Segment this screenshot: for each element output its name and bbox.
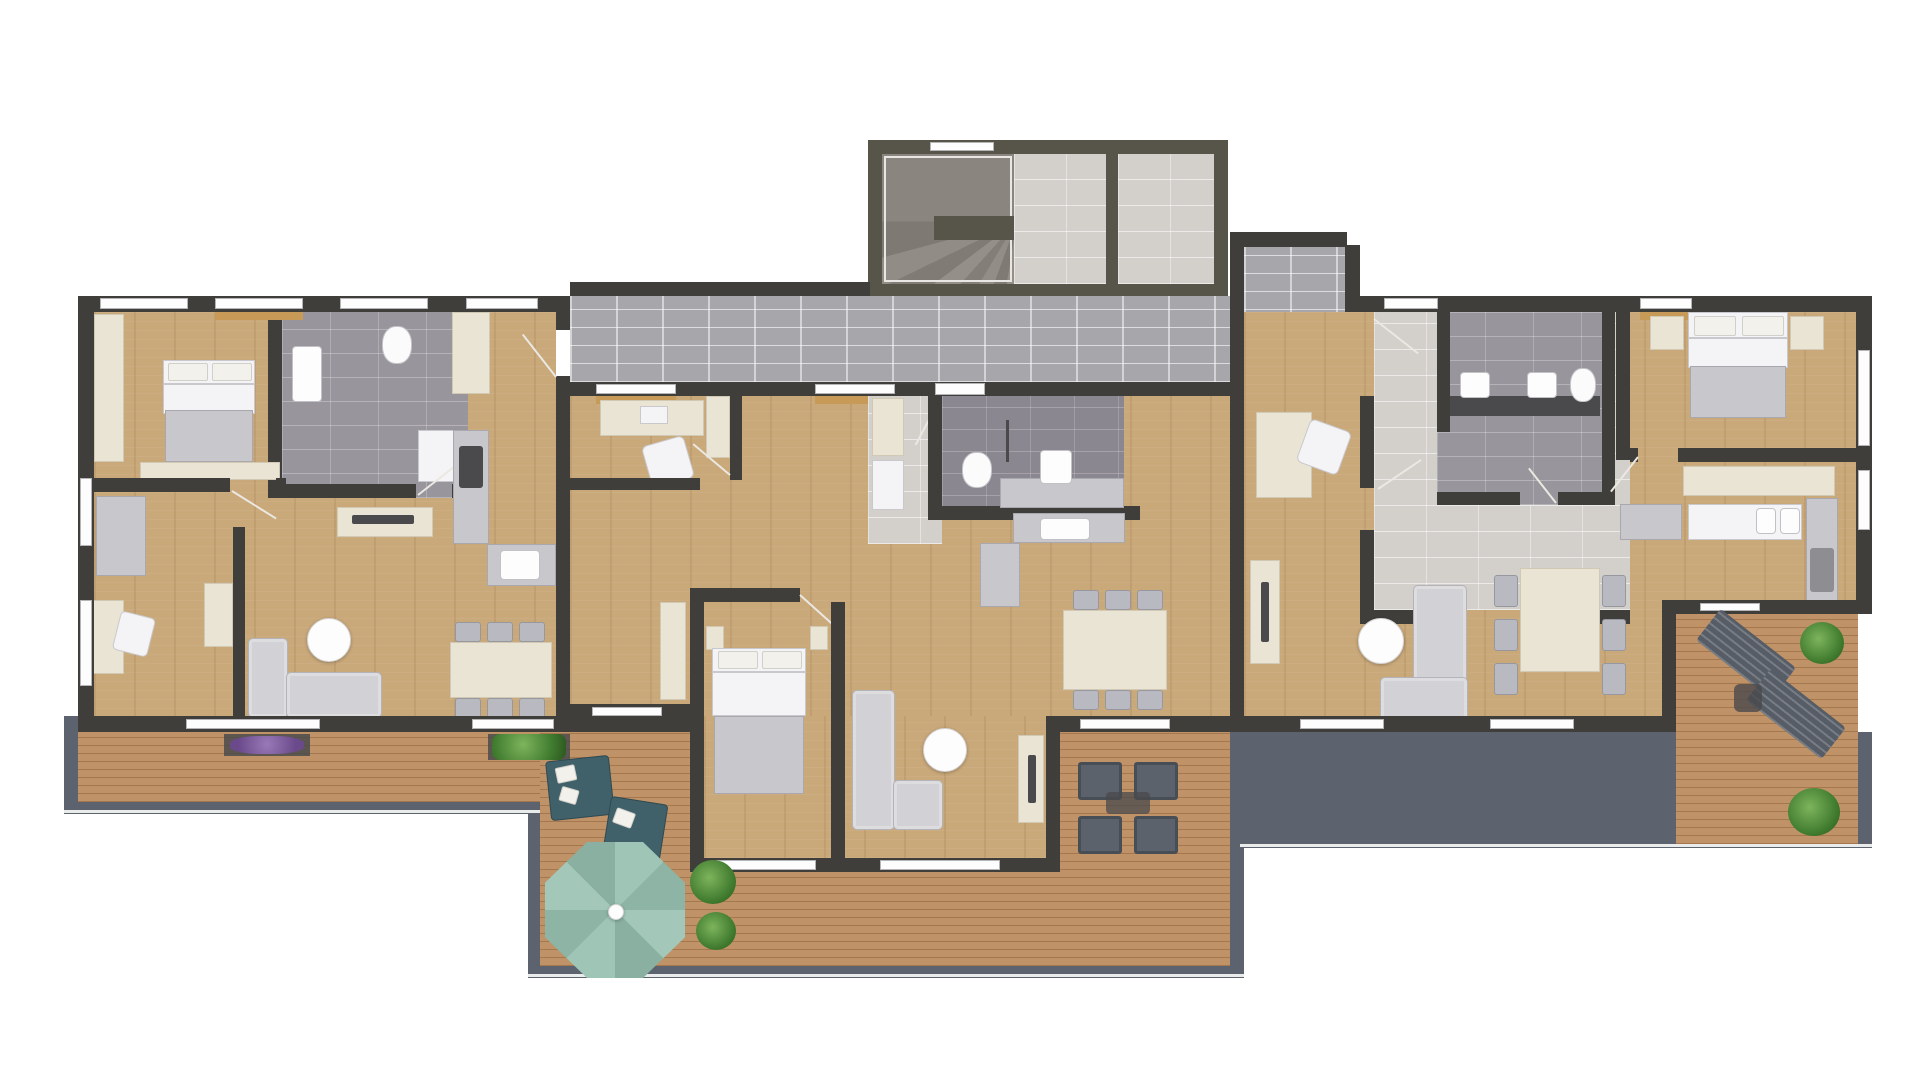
dining-table: [1063, 610, 1167, 690]
hall-cabinet: [872, 460, 904, 510]
window: [1858, 350, 1870, 446]
bed-sheet: [1688, 338, 1788, 368]
round-coffee-table: [923, 728, 967, 772]
round-coffee-table: [307, 618, 351, 662]
floor-plan-canvas: [0, 0, 1920, 1080]
kitchen-counter: [980, 543, 1020, 607]
terrace-door: [592, 707, 662, 716]
apartment-entry-door: [935, 383, 985, 395]
dining-chair: [1137, 690, 1163, 710]
bed-pillow: [762, 651, 802, 669]
parasol-pole: [608, 904, 624, 920]
outdoor-armchair: [1078, 816, 1122, 854]
middle-bathroom-wall: [928, 396, 942, 520]
stairwell-bottom-wall: [1104, 284, 1228, 296]
window: [100, 298, 188, 309]
corner-sofa: [852, 690, 895, 830]
terrace-door: [1300, 719, 1384, 729]
dining-chair: [487, 622, 513, 642]
dining-chair: [1494, 663, 1518, 695]
dining-chair: [519, 622, 545, 642]
dining-table: [450, 642, 552, 698]
stairwell-storage-room: [1118, 154, 1214, 284]
bedroom-west-wall: [1616, 312, 1630, 460]
right-bathroom-wall: [1437, 312, 1450, 432]
stairwell-window: [930, 142, 994, 151]
wardrobe-column: [94, 314, 124, 462]
tv: [1028, 755, 1036, 803]
purple-flower-planter: [230, 736, 304, 754]
round-coffee-table: [1358, 618, 1404, 664]
washbasin: [292, 346, 322, 402]
tv: [352, 515, 414, 524]
dining-chair: [519, 698, 545, 718]
washbasin: [1040, 450, 1072, 484]
dining-chair: [455, 698, 481, 718]
bed-pillow: [718, 651, 758, 669]
party-wall-2: [1230, 245, 1244, 732]
right-east-wall: [1856, 296, 1872, 614]
bed-sheet: [712, 672, 806, 716]
bedroom-east-wall: [831, 602, 845, 858]
bedroom-south-wall: [1678, 448, 1872, 462]
potted-plant: [696, 912, 736, 950]
terrace-door: [186, 719, 320, 729]
dining-chair: [1602, 619, 1626, 651]
terrace-door: [1080, 719, 1170, 729]
left-apartment-south-wall: [78, 716, 692, 732]
right-bathroom-wall: [1602, 312, 1615, 505]
nightstand: [1650, 316, 1684, 350]
window: [1640, 298, 1692, 309]
bed-pillow: [1694, 316, 1736, 336]
dining-chair: [1073, 690, 1099, 710]
green-planter: [492, 734, 566, 760]
stairwell-inner-wall: [1106, 154, 1118, 246]
left-bedroom-wall: [276, 478, 286, 492]
outdoor-armchair: [1134, 816, 1178, 854]
bathroom-lamp: [1006, 420, 1009, 462]
dining-chair: [1494, 619, 1518, 651]
bed-blanket: [714, 716, 804, 794]
outdoor-coffee-table: [1106, 792, 1150, 814]
window: [80, 478, 92, 546]
party-wall-1: [556, 296, 570, 330]
bump-east-wall: [1046, 716, 1060, 872]
corridor-top-wall: [570, 282, 870, 296]
window-sill: [215, 312, 303, 320]
tv: [1261, 582, 1269, 642]
terrace-door: [1700, 603, 1760, 611]
wardrobe-column: [660, 602, 686, 700]
terrace-railing-right: [1240, 844, 1872, 847]
kitchen-sink: [500, 550, 540, 580]
outdoor-side-table: [1734, 684, 1762, 712]
terrace-wall: [1662, 600, 1858, 614]
cooktop: [1810, 548, 1834, 592]
dining-chair: [1105, 690, 1131, 710]
potted-plant: [1788, 788, 1840, 836]
kitchen-sink: [1780, 508, 1800, 534]
bed-pillow: [1742, 316, 1784, 336]
left-bedroom-wall: [94, 478, 230, 492]
window: [80, 600, 92, 686]
dining-chair: [1073, 590, 1099, 610]
bed-pillow: [168, 363, 208, 381]
window: [340, 298, 428, 309]
washbasin: [1527, 372, 1557, 398]
toilet: [962, 452, 992, 488]
dining-chair: [1602, 575, 1626, 607]
dresser: [96, 496, 146, 576]
nightstand: [1790, 316, 1824, 350]
dining-chair: [1494, 575, 1518, 607]
washbasin: [1460, 372, 1490, 398]
study-wall: [1360, 530, 1374, 610]
corner-sofa: [248, 638, 288, 718]
corner-sofa: [286, 672, 382, 718]
outdoor-sofa: [545, 755, 615, 821]
right-bathroom-wall: [1437, 492, 1520, 505]
window: [1384, 298, 1438, 309]
stair-landing-edge: [934, 216, 1014, 240]
fridge-cabinet: [452, 312, 490, 394]
hall-closet: [872, 398, 904, 456]
dining-chair: [1137, 590, 1163, 610]
laptop: [640, 406, 668, 424]
toilet: [1570, 368, 1596, 402]
corner-sofa: [893, 780, 943, 830]
corridor-floor: [570, 296, 1232, 382]
console-table: [204, 583, 233, 647]
study-wall: [1360, 396, 1374, 488]
workspace-wall: [730, 396, 742, 480]
terrace-door: [880, 860, 1000, 870]
bed-blanket: [165, 410, 253, 462]
window: [596, 384, 676, 394]
nightstand: [810, 626, 828, 650]
terrace-wall: [1662, 600, 1676, 732]
dining-chair: [487, 698, 513, 718]
terrace-door: [472, 719, 554, 729]
bump-west-wall: [690, 602, 704, 872]
bed-blanket: [1690, 366, 1786, 418]
kitchen-sink: [1040, 518, 1090, 540]
dining-table: [1520, 568, 1600, 672]
dining-chair: [1602, 663, 1626, 695]
kitchen-cabinet: [1620, 504, 1682, 540]
bedroom-north-wall: [690, 588, 800, 602]
stairwell-bottom-wall: [868, 284, 1016, 296]
workspace-wall: [570, 478, 700, 490]
wardrobe: [706, 396, 730, 458]
window: [1858, 470, 1870, 530]
party-wall-1: [556, 376, 570, 732]
corridor-nook-top-wall: [1230, 232, 1347, 247]
toilet: [382, 326, 412, 364]
partition-wall: [233, 527, 245, 718]
window: [215, 298, 303, 309]
dining-chair: [1105, 590, 1131, 610]
potted-plant: [690, 860, 736, 904]
kitchen-sink: [1756, 508, 1776, 534]
potted-plant: [1800, 622, 1844, 664]
cooktop: [459, 446, 483, 488]
nightstand: [706, 626, 724, 650]
stair-landing: [1014, 154, 1106, 284]
dining-chair: [455, 622, 481, 642]
left-bathroom-wall: [268, 484, 416, 498]
window: [815, 384, 895, 394]
terrace-door: [1490, 719, 1574, 729]
kitchen-island: [1683, 466, 1835, 496]
window: [466, 298, 538, 309]
bed-pillow: [212, 363, 252, 381]
